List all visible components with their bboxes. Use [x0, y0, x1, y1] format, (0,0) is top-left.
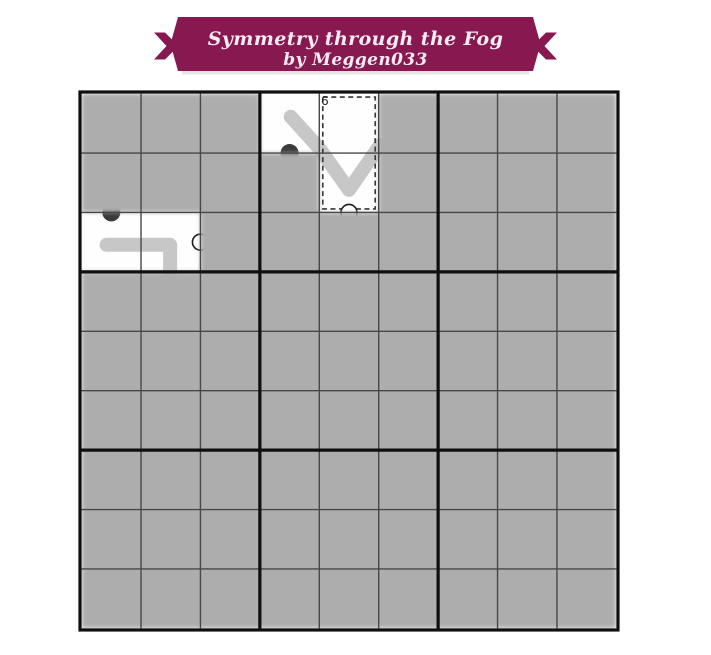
cell-r1c2[interactable] — [200, 153, 259, 212]
cell-r7c8[interactable] — [557, 510, 616, 569]
cell-r0c5[interactable] — [379, 94, 438, 153]
cell-r6c7[interactable] — [498, 450, 557, 509]
banner-title: Symmetry through the Fog — [208, 28, 504, 50]
cell-r8c2[interactable] — [200, 569, 259, 628]
cell-r3c6[interactable] — [438, 272, 497, 331]
cell-r5c0[interactable] — [82, 391, 141, 450]
cell-r2c2[interactable] — [200, 212, 259, 271]
cell-r8c4[interactable] — [319, 569, 378, 628]
cell-r2c3[interactable] — [260, 212, 319, 271]
cell-r4c3[interactable] — [260, 331, 319, 390]
cell-r3c8[interactable] — [557, 272, 616, 331]
page: { "banner": { "title": "Symmetry through… — [0, 0, 711, 655]
cell-r8c1[interactable] — [141, 569, 200, 628]
cell-r4c4[interactable] — [319, 331, 378, 390]
cell-r2c4[interactable] — [319, 212, 378, 271]
cell-r7c1[interactable] — [141, 510, 200, 569]
cell-r7c7[interactable] — [498, 510, 557, 569]
cell-r6c3[interactable] — [260, 450, 319, 509]
cell-r5c2[interactable] — [200, 391, 259, 450]
cell-r0c6[interactable] — [438, 94, 497, 153]
cell-r4c5[interactable] — [379, 331, 438, 390]
cell-r1c5[interactable] — [379, 153, 438, 212]
cell-r3c2[interactable] — [200, 272, 259, 331]
cell-r7c2[interactable] — [200, 510, 259, 569]
cell-r1c1[interactable] — [141, 153, 200, 212]
cell-r4c8[interactable] — [557, 331, 616, 390]
cell-r0c1[interactable] — [141, 94, 200, 153]
cell-r2c0[interactable] — [82, 212, 141, 271]
cell-r6c5[interactable] — [379, 450, 438, 509]
cell-r6c6[interactable] — [438, 450, 497, 509]
banner-byline: by Meggen033 — [283, 50, 428, 70]
cell-r8c8[interactable] — [557, 569, 616, 628]
cell-r5c7[interactable] — [498, 391, 557, 450]
cell-r0c7[interactable] — [498, 94, 557, 153]
cell-r3c7[interactable] — [498, 272, 557, 331]
cell-r8c0[interactable] — [82, 569, 141, 628]
cell-r2c8[interactable] — [557, 212, 616, 271]
cell-r5c8[interactable] — [557, 391, 616, 450]
cell-r0c0[interactable] — [82, 94, 141, 153]
cell-r2c7[interactable] — [498, 212, 557, 271]
cell-r2c6[interactable] — [438, 212, 497, 271]
cell-r1c6[interactable] — [438, 153, 497, 212]
cell-r3c5[interactable] — [379, 272, 438, 331]
cell-r4c0[interactable] — [82, 331, 141, 390]
cell-r0c4[interactable] — [319, 94, 378, 153]
cell-r5c5[interactable] — [379, 391, 438, 450]
cell-r6c4[interactable] — [319, 450, 378, 509]
puzzle-grid[interactable]: 6 — [80, 92, 618, 630]
cell-r1c7[interactable] — [498, 153, 557, 212]
cell-r5c1[interactable] — [141, 391, 200, 450]
cell-r4c6[interactable] — [438, 331, 497, 390]
cell-r6c2[interactable] — [200, 450, 259, 509]
cell-r6c8[interactable] — [557, 450, 616, 509]
cell-r5c4[interactable] — [319, 391, 378, 450]
cell-r5c3[interactable] — [260, 391, 319, 450]
cell-r8c7[interactable] — [498, 569, 557, 628]
cell-r6c1[interactable] — [141, 450, 200, 509]
cell-r7c4[interactable] — [319, 510, 378, 569]
banner-shadow — [182, 71, 529, 75]
cell-r4c7[interactable] — [498, 331, 557, 390]
cell-r6c0[interactable] — [82, 450, 141, 509]
cell-r4c2[interactable] — [200, 331, 259, 390]
cell-r1c0[interactable] — [82, 153, 141, 212]
cell-r4c1[interactable] — [141, 331, 200, 390]
cell-r8c3[interactable] — [260, 569, 319, 628]
banner: Symmetry through the Fog by Meggen033 — [154, 17, 557, 75]
cell-r3c4[interactable] — [319, 272, 378, 331]
cell-hit-layer — [82, 94, 617, 629]
cell-r0c8[interactable] — [557, 94, 616, 153]
cell-r0c2[interactable] — [200, 94, 259, 153]
cell-r8c6[interactable] — [438, 569, 497, 628]
cell-r2c5[interactable] — [379, 212, 438, 271]
cell-r7c5[interactable] — [379, 510, 438, 569]
cell-r0c3[interactable] — [260, 94, 319, 153]
cell-r3c0[interactable] — [82, 272, 141, 331]
cell-r5c6[interactable] — [438, 391, 497, 450]
cell-r3c1[interactable] — [141, 272, 200, 331]
cell-r1c3[interactable] — [260, 153, 319, 212]
cell-r7c0[interactable] — [82, 510, 141, 569]
cell-r8c5[interactable] — [379, 569, 438, 628]
cell-r2c1[interactable] — [141, 212, 200, 271]
cell-r7c6[interactable] — [438, 510, 497, 569]
puzzle-scene: Symmetry through the Fog by Meggen033 6 — [0, 0, 711, 655]
cell-r1c8[interactable] — [557, 153, 616, 212]
cell-r3c3[interactable] — [260, 272, 319, 331]
cell-r1c4[interactable] — [319, 153, 378, 212]
cell-r7c3[interactable] — [260, 510, 319, 569]
